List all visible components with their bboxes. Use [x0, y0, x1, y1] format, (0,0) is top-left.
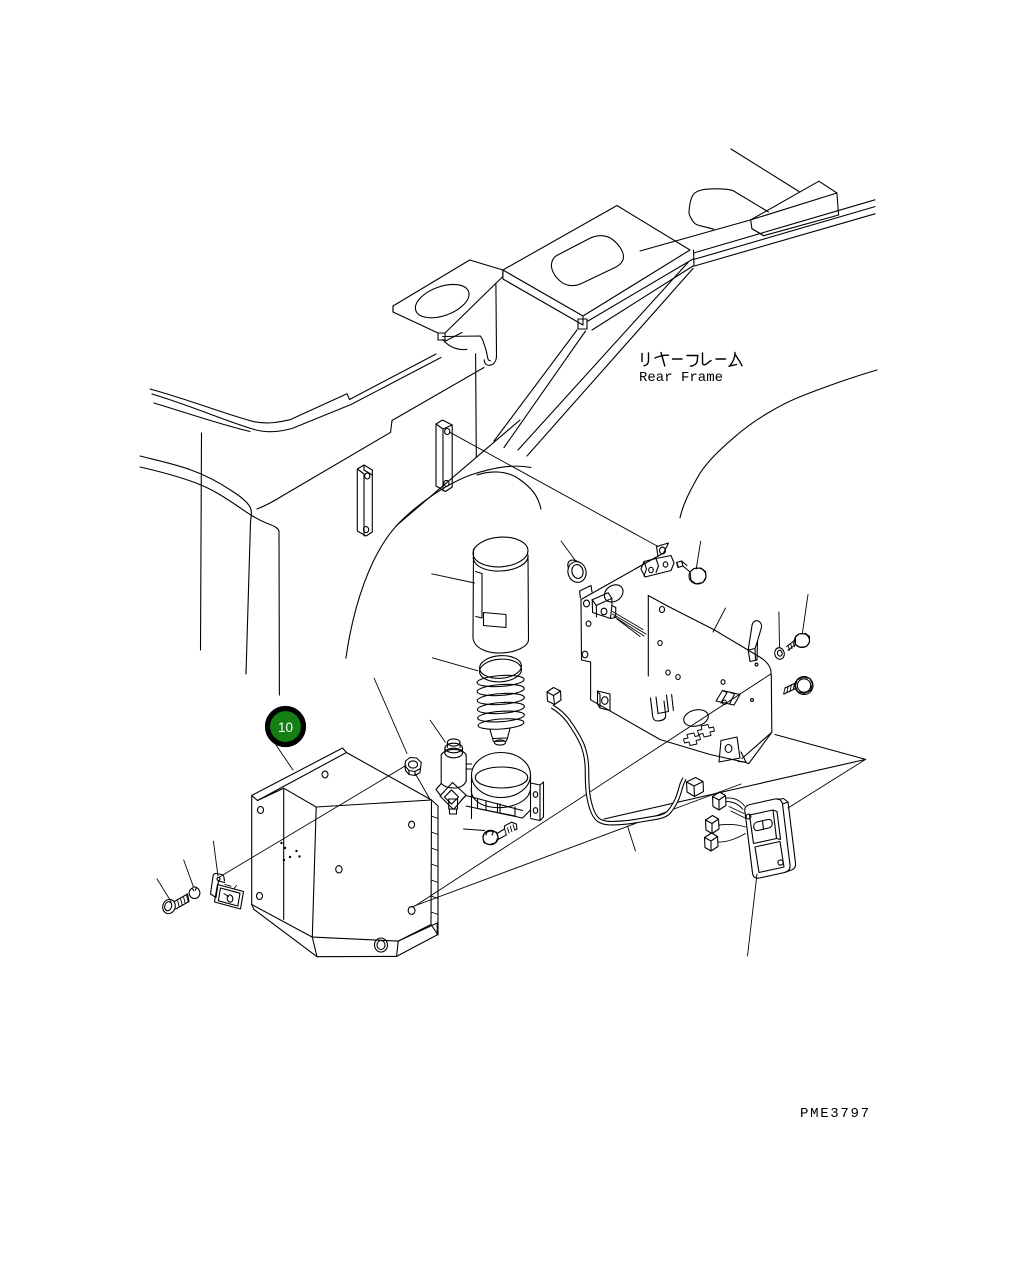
svg-text:PME3797: PME3797 — [800, 1106, 871, 1122]
svg-text:Rear Frame: Rear Frame — [639, 370, 723, 386]
svg-text:10: 10 — [278, 720, 293, 735]
